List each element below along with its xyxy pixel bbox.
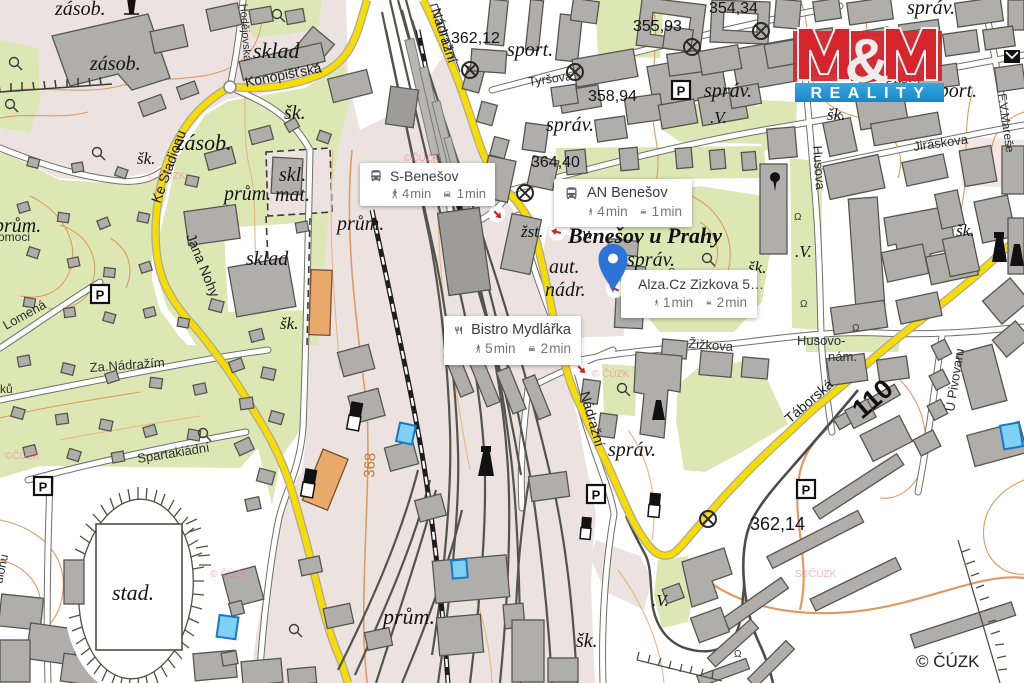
svg-text:sklad: sklad [253,38,300,63]
svg-text:362,12: 362,12 [451,30,500,47]
svg-text:ků: ků [0,382,13,396]
svg-text:P: P [677,84,686,99]
svg-text:nádr.: nádr. [545,279,586,301]
svg-text:355,93: 355,93 [633,18,682,35]
svg-text:362,14: 362,14 [750,514,805,534]
svg-text:šk.: šk. [284,102,306,124]
svg-text:aut.: aut. [549,256,580,278]
svg-text:správ.: správ. [704,80,752,102]
svg-text:REALITY: REALITY [811,85,932,102]
svg-text:správ.: správ. [546,114,594,136]
svg-text:.V.: .V. [795,242,812,261]
svg-text:prům.: prům. [222,183,271,205]
svg-text:© ČÚZK: © ČÚZK [210,567,248,580]
svg-text:Husova: Husova [810,145,828,191]
svg-text:358,94: 358,94 [588,88,637,105]
svg-text:© ČÚZK: © ČÚZK [916,652,980,671]
svg-text:správ.: správ. [627,249,675,271]
svg-text:omoci: omoci [0,230,30,244]
svg-text:.V.: .V. [710,108,727,127]
svg-text:prům.: prům. [381,604,435,629]
svg-text:šk.: šk. [576,630,598,652]
svg-text:354,34: 354,34 [709,0,758,17]
svg-text:šk.: šk. [956,221,974,240]
svg-text:sport.: sport. [507,39,553,61]
svg-text:stad.: stad. [112,580,154,605]
svg-text:364,40: 364,40 [531,154,580,171]
svg-text:Ω: Ω [800,299,808,310]
svg-text:zásob.: zásob. [54,0,106,20]
svg-text:Žižkova: Žižkova [688,336,734,354]
svg-text:P: P [592,488,601,503]
svg-text:P: P [96,288,105,303]
svg-text:nám.: nám. [828,349,857,364]
svg-text:S©ČÚZK: S©ČÚZK [795,567,837,580]
svg-text:368: 368 [361,452,379,478]
svg-text:mat.: mat. [275,184,310,206]
svg-text:skl.: skl. [279,164,306,186]
svg-text:správ.: správ. [907,0,955,19]
svg-text:šk.: šk. [137,149,155,168]
svg-text:P: P [39,480,48,495]
svg-text:šk.: šk. [827,105,845,124]
svg-text:'©ČÚZK: '©ČÚZK [3,449,40,462]
svg-text:sklad: sklad [246,248,289,270]
svg-text:© ČÚZK: © ČÚZK [148,169,186,182]
svg-text:zásob.: zásob. [89,53,141,75]
svg-text:žst.: žst. [520,222,543,241]
svg-text:Husovo-: Husovo- [797,333,845,348]
svg-text:prům.: prům. [335,213,384,235]
svg-text:Ω: Ω [734,649,742,660]
svg-text:.V.: .V. [652,591,669,610]
svg-text:správ.: správ. [608,439,656,461]
svg-text:šk.: šk. [280,314,298,333]
svg-text:© ČÚZK: © ČÚZK [592,367,630,380]
svg-text:Ω: Ω [852,323,860,334]
svg-text:P: P [802,483,811,498]
svg-text:Ω: Ω [794,212,802,223]
